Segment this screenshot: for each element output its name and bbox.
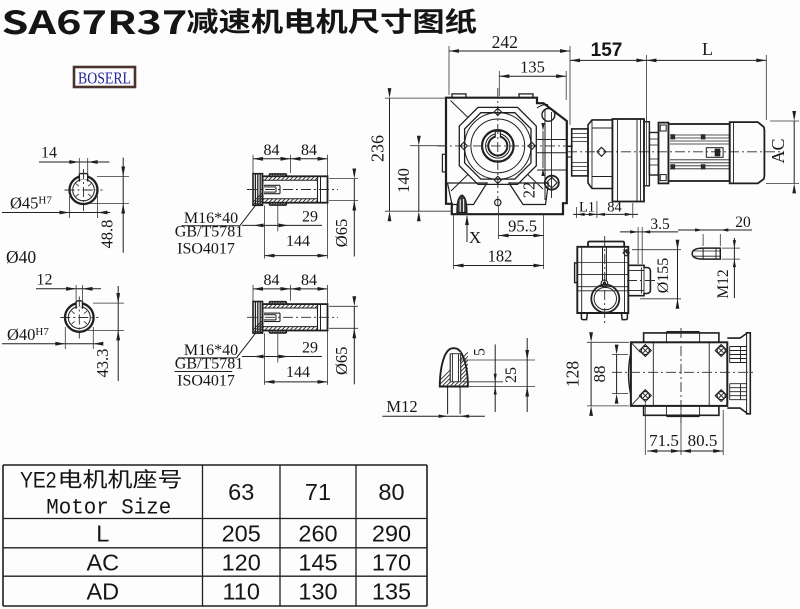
svg-text:84: 84 (264, 142, 280, 159)
svg-text:ISO4017: ISO4017 (177, 241, 235, 258)
svg-text:88: 88 (590, 366, 609, 383)
svg-text:135: 135 (520, 58, 545, 77)
svg-text:157: 157 (591, 40, 623, 61)
svg-text:84: 84 (607, 200, 622, 216)
svg-text:X: X (469, 228, 481, 247)
svg-text:BOSERL: BOSERL (78, 69, 131, 88)
svg-text:M12: M12 (386, 397, 417, 416)
svg-text:5: 5 (472, 348, 489, 356)
svg-text:290: 290 (372, 521, 411, 547)
svg-text:20: 20 (735, 214, 751, 231)
svg-text:110: 110 (222, 579, 259, 605)
svg-text:260: 260 (298, 521, 337, 547)
svg-text:170: 170 (372, 550, 411, 576)
svg-text:84: 84 (301, 142, 317, 159)
svg-text:22: 22 (520, 182, 539, 199)
svg-text:43.3: 43.3 (93, 349, 112, 378)
svg-text:80.5: 80.5 (688, 431, 718, 450)
svg-text:12: 12 (37, 272, 53, 289)
svg-text:84: 84 (301, 272, 317, 289)
svg-text:Ø65: Ø65 (332, 219, 351, 247)
svg-text:48.8: 48.8 (98, 220, 117, 249)
svg-text:80: 80 (378, 479, 404, 505)
svg-text:L1: L1 (579, 200, 595, 216)
svg-text:ISO4017: ISO4017 (177, 373, 235, 390)
svg-text:145: 145 (298, 550, 337, 576)
svg-text:130: 130 (298, 579, 337, 605)
svg-text:Motor Size: Motor Size (46, 496, 171, 521)
svg-text:29: 29 (302, 340, 318, 357)
svg-text:3.5: 3.5 (650, 216, 670, 233)
svg-text:29: 29 (302, 209, 318, 226)
svg-text:L: L (96, 521, 109, 547)
svg-text:YE2: YE2 (20, 468, 57, 493)
svg-text:AC: AC (768, 138, 788, 163)
svg-text:14: 14 (41, 145, 57, 162)
svg-text:84: 84 (264, 272, 280, 289)
svg-text:236: 236 (368, 135, 388, 162)
svg-text:182: 182 (488, 247, 513, 266)
svg-text:242: 242 (492, 32, 518, 52)
svg-text:Ø155: Ø155 (655, 258, 672, 294)
svg-text:71.5: 71.5 (649, 431, 679, 450)
svg-text:140: 140 (394, 168, 413, 193)
svg-text:Ø40: Ø40 (6, 247, 36, 267)
svg-text:63: 63 (228, 479, 254, 505)
svg-text:M12: M12 (715, 269, 732, 298)
svg-text:120: 120 (222, 550, 261, 576)
svg-text:25: 25 (503, 367, 520, 383)
svg-text:AD: AD (86, 579, 119, 605)
svg-text:71: 71 (305, 479, 331, 505)
svg-text:205: 205 (222, 521, 261, 547)
svg-text:135: 135 (372, 579, 411, 605)
svg-text:L: L (702, 39, 713, 59)
svg-text:Ø65: Ø65 (332, 347, 351, 375)
svg-text:128: 128 (563, 361, 583, 388)
svg-text:144: 144 (286, 233, 310, 250)
svg-text:95.5: 95.5 (508, 217, 537, 236)
svg-text:144: 144 (286, 364, 310, 381)
svg-text:AC: AC (86, 550, 119, 576)
